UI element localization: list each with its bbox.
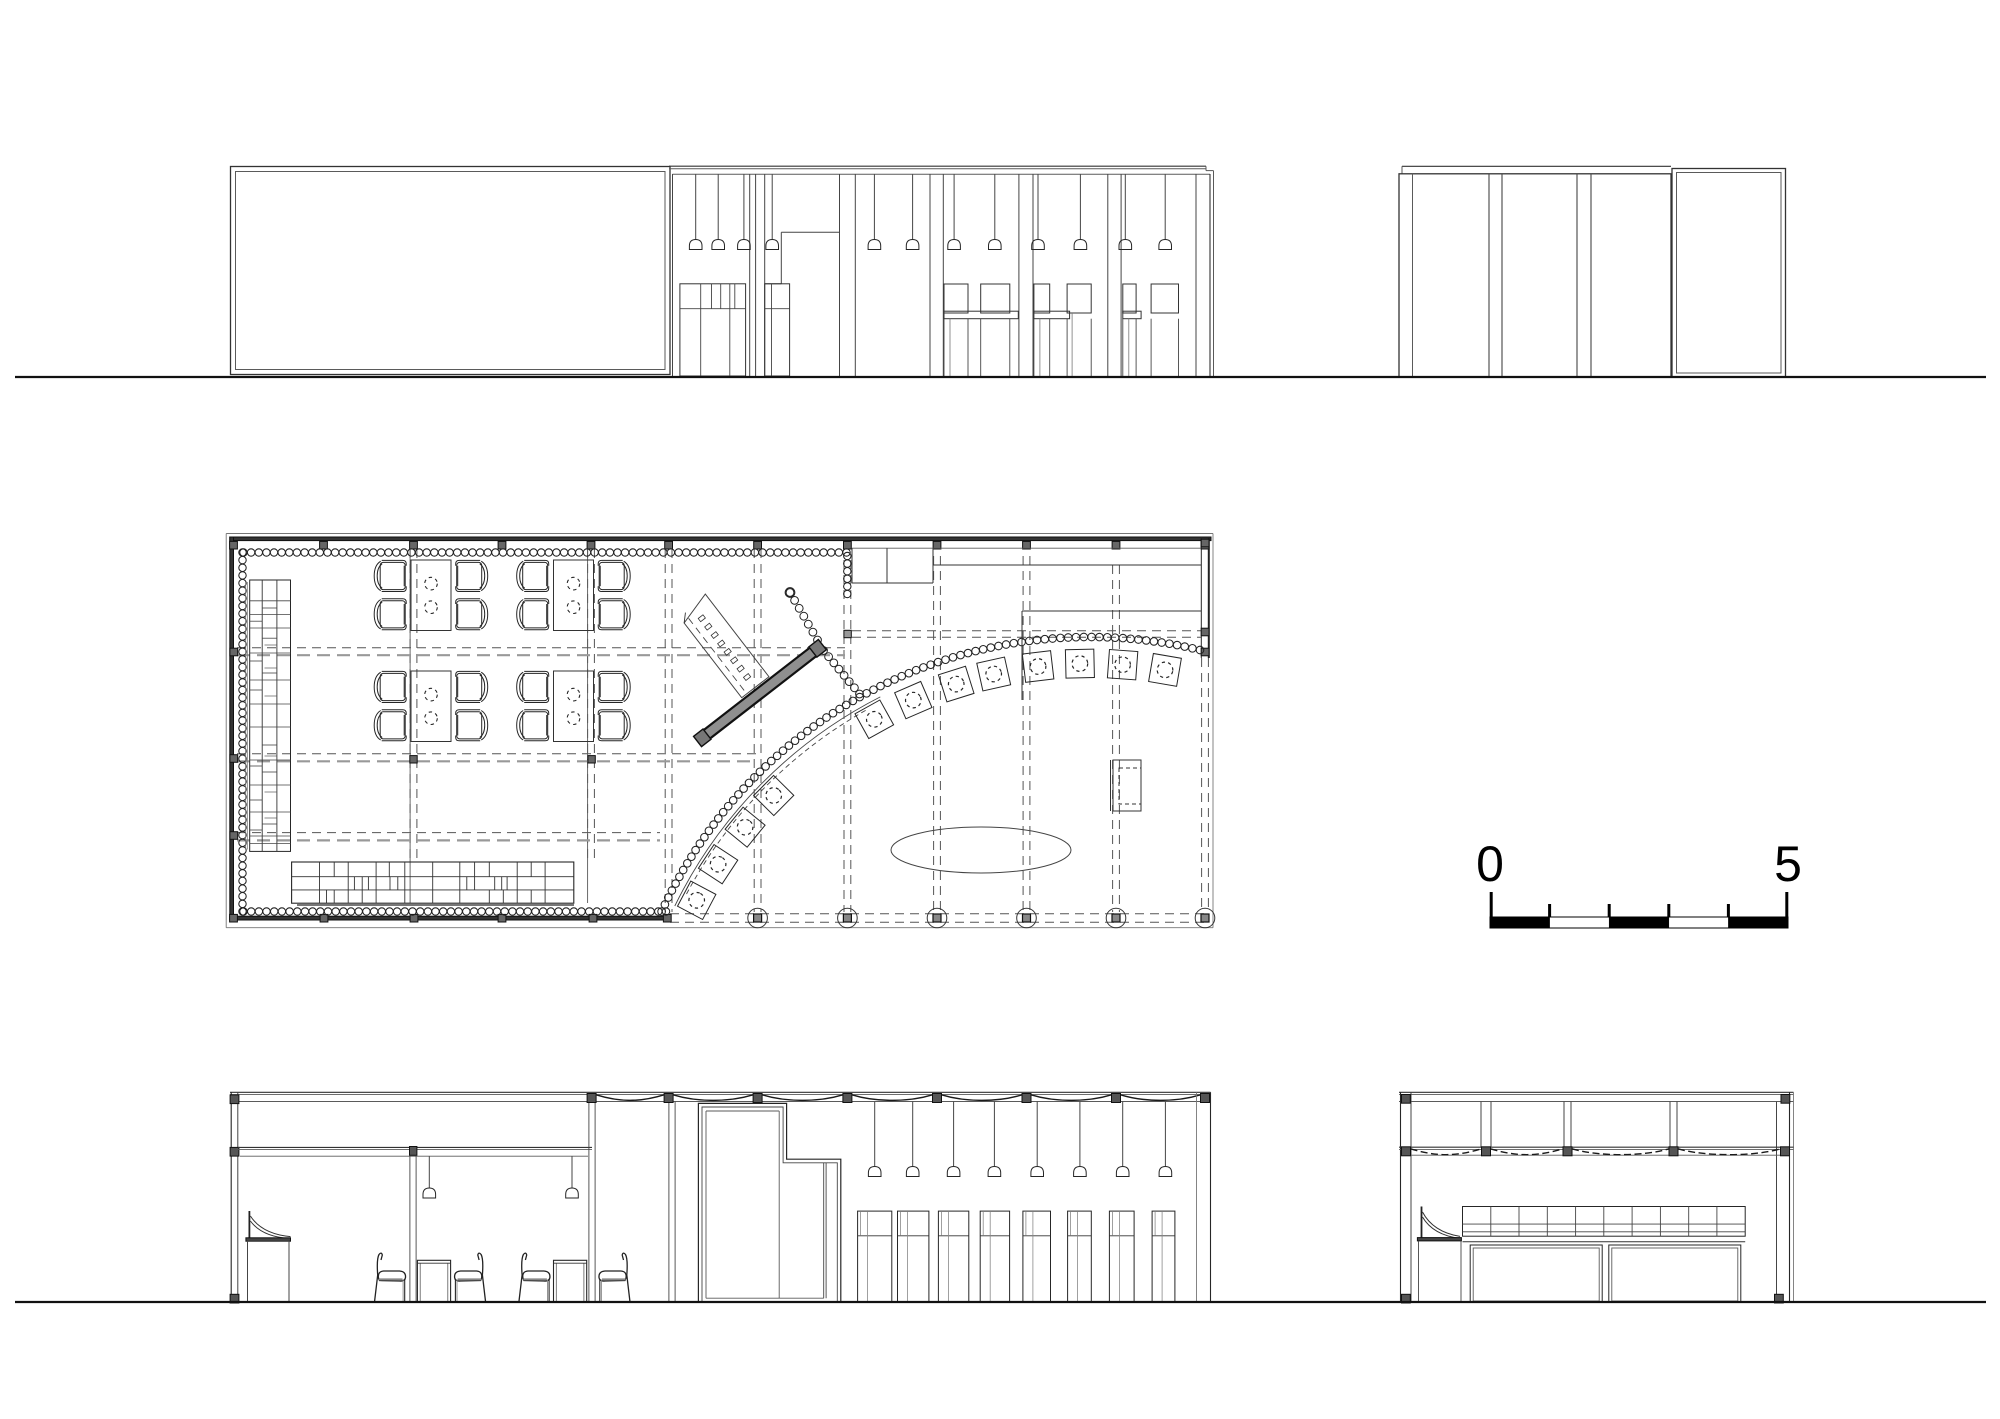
svg-text:5: 5 [1774, 836, 1802, 892]
svg-text:0: 0 [1476, 836, 1504, 892]
